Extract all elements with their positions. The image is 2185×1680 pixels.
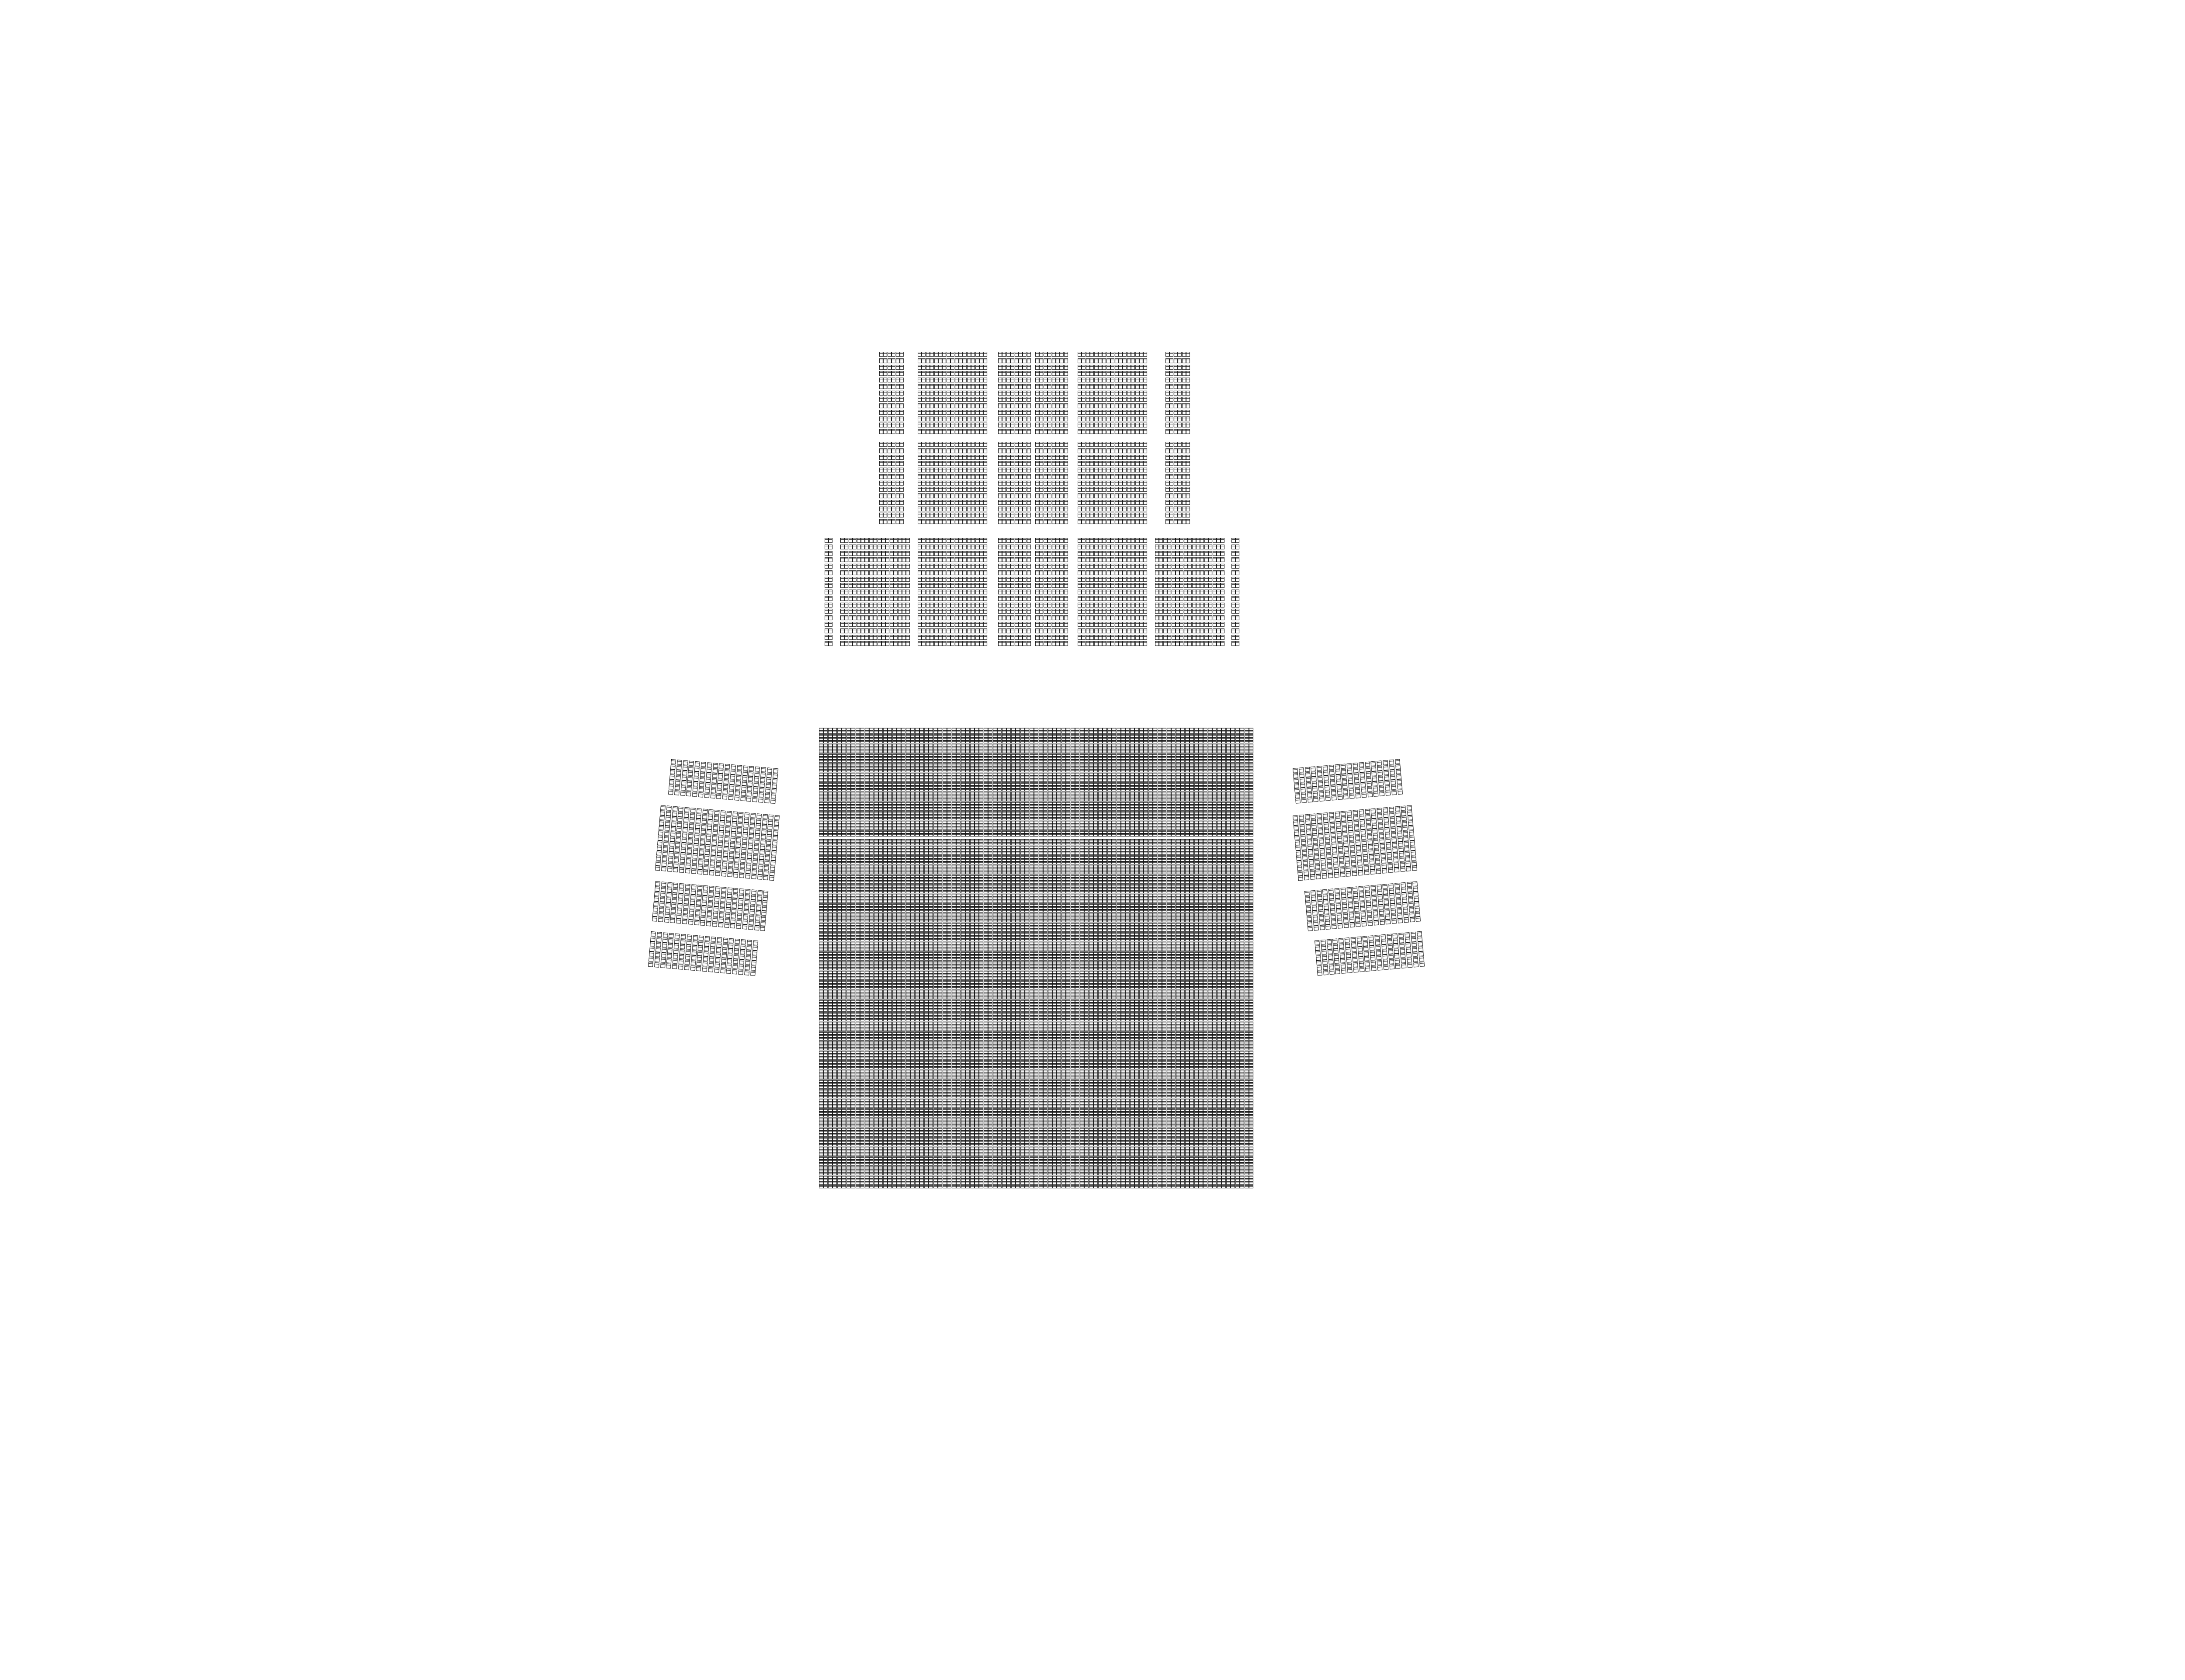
section-side-left-1[interactable] bbox=[668, 759, 780, 805]
section-rear-tier1-block-a[interactable] bbox=[879, 352, 905, 437]
section-rear-tier1-block-b[interactable] bbox=[918, 352, 988, 437]
venue-seat-map bbox=[0, 0, 2185, 1680]
section-rear-tier2-block-d[interactable] bbox=[1078, 442, 1148, 527]
section-side-left-3[interactable] bbox=[652, 881, 771, 933]
section-floor-main[interactable] bbox=[819, 839, 1255, 1189]
section-rear-tier3-block-d[interactable] bbox=[1078, 538, 1148, 649]
section-side-right-2[interactable] bbox=[1293, 805, 1419, 882]
section-rear-tier2-block-a[interactable] bbox=[879, 442, 905, 527]
section-rear-tier3-block-e[interactable] bbox=[1155, 538, 1226, 649]
section-floor-front[interactable] bbox=[819, 728, 1255, 838]
section-side-right-1[interactable] bbox=[1293, 759, 1405, 805]
section-rear-tier1-block-d[interactable] bbox=[1078, 352, 1148, 437]
section-rear-tier3-edge-left[interactable] bbox=[825, 538, 834, 649]
section-rear-tier3-edge-right[interactable] bbox=[1231, 538, 1241, 649]
section-rear-tier2-block-c2[interactable] bbox=[1035, 442, 1069, 527]
section-side-left-2[interactable] bbox=[655, 805, 782, 882]
section-side-left-4[interactable] bbox=[648, 931, 760, 978]
section-rear-tier1-block-c1[interactable] bbox=[998, 352, 1032, 437]
section-rear-tier3-block-b[interactable] bbox=[918, 538, 988, 649]
section-side-right-4[interactable] bbox=[1314, 931, 1427, 977]
section-rear-tier1-block-c2[interactable] bbox=[1035, 352, 1069, 437]
section-rear-tier2-block-b[interactable] bbox=[918, 442, 988, 527]
section-rear-tier2-block-e[interactable] bbox=[1165, 442, 1191, 527]
section-rear-tier1-block-e[interactable] bbox=[1165, 352, 1191, 437]
section-rear-tier2-block-c1[interactable] bbox=[998, 442, 1032, 527]
section-side-right-3[interactable] bbox=[1304, 881, 1423, 933]
section-rear-tier3-block-a[interactable] bbox=[840, 538, 911, 649]
section-rear-tier3-block-c2[interactable] bbox=[1035, 538, 1069, 649]
section-rear-tier3-block-c1[interactable] bbox=[998, 538, 1032, 649]
